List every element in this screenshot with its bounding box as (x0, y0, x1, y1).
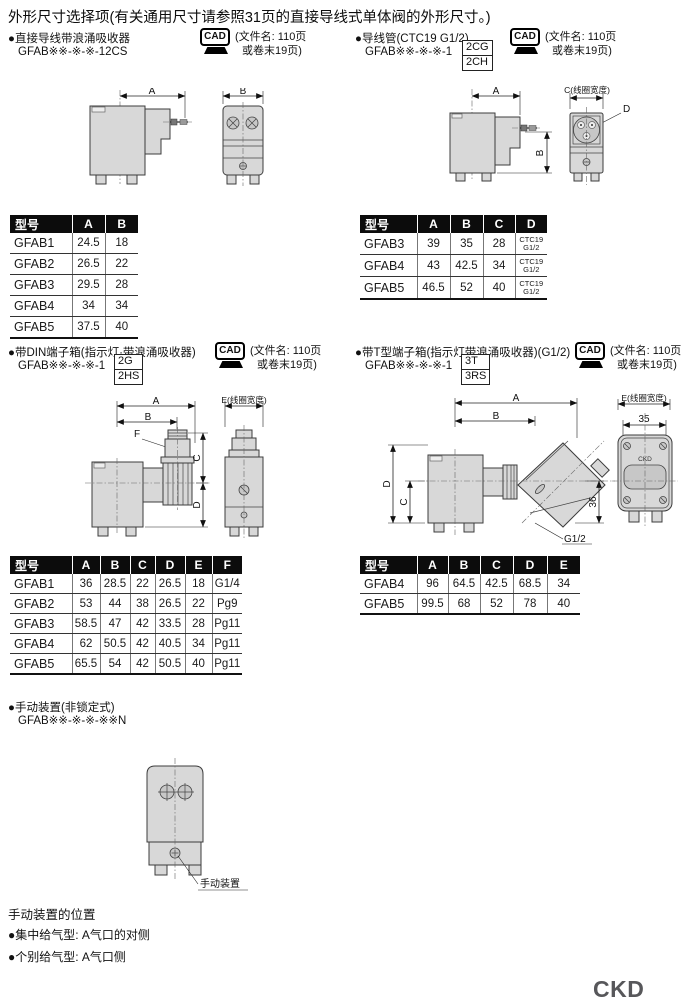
model-code-tbox: GFAB※※-※-※-1 (365, 358, 452, 372)
cad-icon-base (219, 361, 243, 368)
dimension-table-conduit: 型号 A B C D GFAB3393528 CTC19G1/2 GFAB443… (360, 215, 547, 300)
cad-icon-base (579, 361, 603, 368)
header-cell: A (417, 215, 450, 233)
model-code-manual: GFAB※※-※-※-※※N (18, 713, 126, 727)
front-view: E(线圈宽度) (221, 395, 267, 539)
brand-logo: CKD (593, 976, 644, 1003)
header-cell: B (105, 215, 138, 233)
table-header-row: 型号 A B C D (360, 215, 547, 233)
table-row: GFAB43434 (10, 296, 138, 317)
dimension-table-din: 型号ABCDEF GFAB13628.52226.518G1/4 GFAB253… (10, 556, 242, 675)
cad-icon-label: CAD (200, 28, 230, 46)
table-row: GFAB537.540 (10, 317, 138, 339)
dim-label-e: E(线圈宽度) (221, 395, 267, 405)
table-row: GFAB46250.54240.534Pg11 (10, 634, 242, 654)
cad-icon-label: CAD (215, 342, 245, 360)
dim-label-d: D (192, 501, 203, 508)
technical-drawing-din: A B F C D (60, 395, 310, 545)
technical-drawing-conduit: A B C(线圈宽度) D (440, 85, 675, 193)
table-row: GFAB253443826.522Pg9 (10, 594, 242, 614)
table-row: GFAB546.55240 CTC19G1/2 (360, 277, 547, 300)
table-header-row: 型号ABCDEF (10, 556, 242, 574)
cad-icon-label: CAD (510, 28, 540, 46)
cad-note: (文件名: 110页 或卷末19页) (545, 30, 616, 58)
cad-icon: CAD (575, 342, 607, 368)
model-option: 2CH (462, 55, 493, 71)
table-row: GFAB565.5544250.540Pg11 (10, 654, 242, 675)
header-cell: D (515, 215, 547, 233)
dim-label-a: A (149, 88, 156, 97)
model-option: 2G (114, 354, 143, 370)
page-title: 外形尺寸选择项(有关通用尺寸请参照31页的直接导线式单体阀的外形尺寸。) (8, 6, 491, 27)
technical-drawing-tbox: A B D C (380, 393, 680, 553)
dim-label-d: D (382, 480, 393, 487)
cad-note: (文件名: 110页 或卷末19页) (235, 30, 306, 58)
manual-override-label: 手动装置 (200, 877, 240, 890)
manual-position-title: 手动装置的位置 (8, 904, 96, 923)
technical-drawing-direct-lead: A B (70, 88, 280, 188)
table-row: GFAB49664.542.568.534 (360, 574, 580, 594)
cad-icon-label: CAD (575, 342, 605, 360)
front-view: E(线圈宽度) 35 CKD (612, 393, 678, 528)
dim-label-a: A (493, 86, 500, 97)
model-option: 3T (461, 354, 490, 370)
dim-label-thread: G1/2 (564, 534, 586, 545)
dim-label-36: 36 (588, 496, 599, 508)
model-option: 2HS (114, 369, 143, 385)
table-row: GFAB329.528 (10, 275, 138, 296)
dim-label-c: C(线圈宽度) (564, 85, 610, 95)
side-view: A B D C (382, 393, 615, 545)
cad-note: (文件名: 110页 或卷末19页) (250, 344, 321, 372)
cad-icon: CAD (215, 342, 247, 368)
dimension-table-direct-lead: 型号 A B GFAB124.518 GFAB226.522 GFAB329.5… (10, 215, 138, 339)
dim-label-f: F (134, 429, 140, 440)
dim-label-c: C (399, 498, 410, 505)
header-cell: A (72, 215, 105, 233)
header-cell: 型号 (10, 215, 72, 233)
table-row: GFAB599.568527840 (360, 594, 580, 615)
model-option-boxes: 2CG 2CH (462, 40, 493, 71)
model-option: 2CG (462, 40, 493, 56)
table-row: GFAB13628.52226.518G1/4 (10, 574, 242, 594)
dim-label-b: B (493, 411, 500, 422)
dim-label-e: E(线圈宽度) (621, 393, 667, 403)
front-view: 手动装置 (147, 758, 248, 890)
cad-icon-base (514, 47, 538, 54)
header-cell: B (450, 215, 483, 233)
table-row: GFAB44342.534 CTC19G1/2 (360, 255, 547, 277)
cad-note: (文件名: 110页 或卷末19页) (610, 344, 681, 372)
model-code-din: GFAB※※-※-※-1 (18, 358, 105, 372)
technical-drawing-manual: 手动装置 (100, 742, 310, 897)
header-cell: C (483, 215, 515, 233)
table-row: GFAB226.522 (10, 254, 138, 275)
dim-label-a: A (513, 393, 520, 404)
model-code-conduit: GFAB※※-※-※-1 (365, 44, 452, 58)
cad-icon: CAD (200, 28, 232, 54)
side-view: A (90, 88, 194, 184)
cad-icon: CAD (510, 28, 542, 54)
model-option: 3RS (461, 369, 490, 385)
side-view: A B (450, 86, 552, 181)
manual-position-line2: ●个别给气型: A气口侧 (8, 948, 126, 965)
table-header-row: 型号 A B (10, 215, 138, 233)
dim-label-d: D (623, 104, 630, 115)
table-row: GFAB3393528 CTC19G1/2 (360, 233, 547, 255)
model-option-boxes: 3T 3RS (461, 354, 490, 385)
model-code-direct-lead: GFAB※※-※-※-12CS (18, 44, 127, 58)
dim-label-c: C (192, 454, 203, 461)
table-row: GFAB124.518 (10, 233, 138, 254)
front-view: C(线圈宽度) D (564, 85, 630, 185)
front-view: B (223, 88, 263, 186)
table-header-row: 型号ABCDE (360, 556, 580, 574)
header-cell: 型号 (360, 215, 417, 233)
dim-label-35: 35 (638, 414, 650, 425)
dimension-table-tbox: 型号ABCDE GFAB49664.542.568.534 GFAB599.56… (360, 556, 580, 615)
catalog-page: 外形尺寸选择项(有关通用尺寸请参照31页的直接导线式单体阀的外形尺寸。) ●直接… (0, 0, 700, 1004)
model-option-boxes: 2G 2HS (114, 354, 143, 385)
dim-label-b: B (145, 412, 152, 423)
cad-icon-base (204, 47, 228, 54)
manual-position-line1: ●集中给气型: A气口的对侧 (8, 926, 150, 943)
dim-label-b: B (240, 88, 247, 97)
side-view: A B F C D (85, 396, 210, 536)
dim-label-b: B (535, 149, 546, 156)
table-row: GFAB358.5474233.528Pg11 (10, 614, 242, 634)
dim-label-a: A (153, 396, 160, 407)
